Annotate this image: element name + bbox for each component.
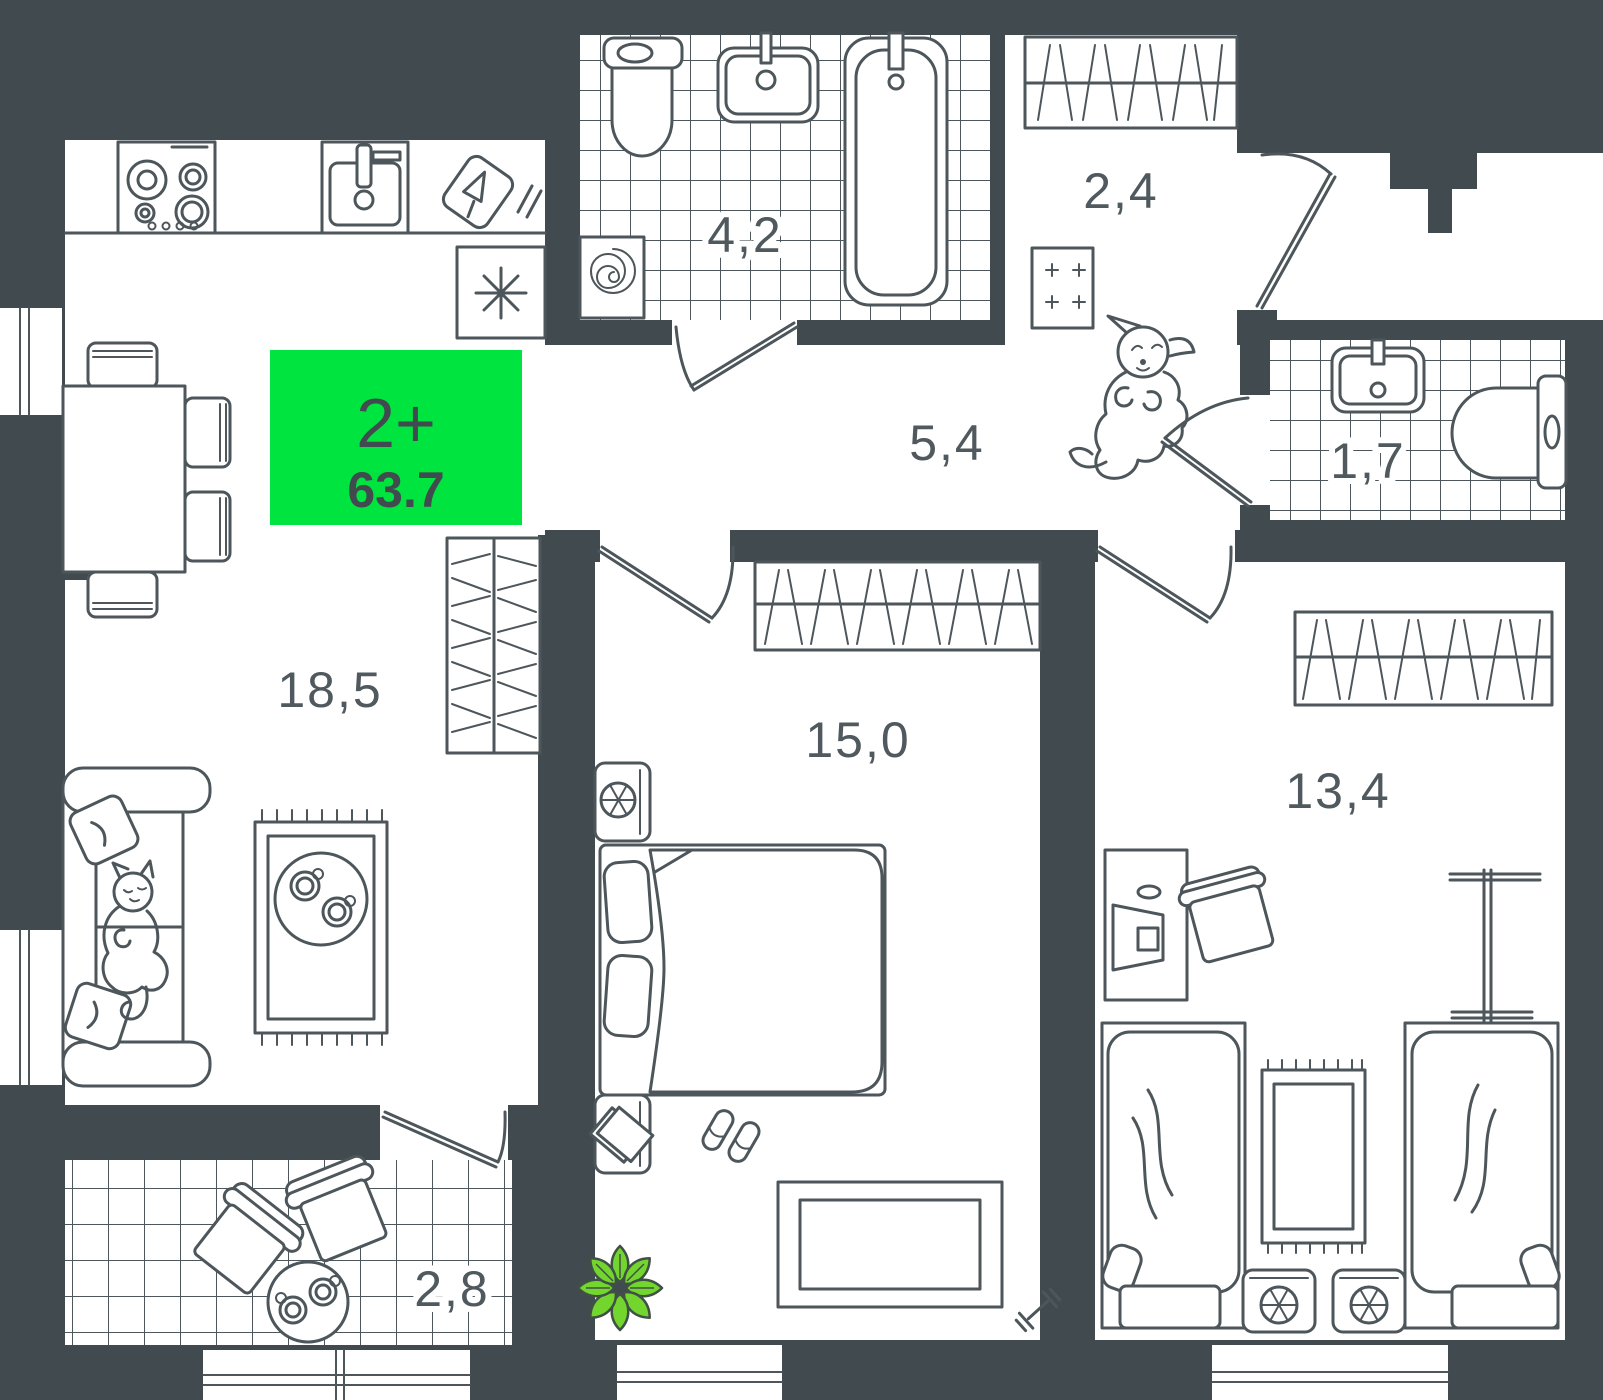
window-living-left-top (0, 308, 62, 415)
pillow (603, 861, 652, 944)
label-toilet-area: 1,7 (1330, 433, 1406, 489)
entrance-door-opening (1237, 153, 1277, 310)
label-hallway-area: 5,4 (909, 415, 985, 471)
nightstand-with-book (590, 1095, 653, 1173)
window-balcony-bottom (203, 1350, 470, 1400)
window-living-left-bottom (0, 930, 62, 1085)
double-bed (600, 845, 885, 1095)
single-bed-right (1405, 1023, 1563, 1328)
desk-with-monitor (1105, 850, 1187, 1000)
living-wardrobe-closet (447, 538, 540, 753)
label-kids-bedroom-area: 13,4 (1285, 763, 1390, 819)
pillow (603, 955, 652, 1038)
label-bedroom-area: 15,0 (805, 712, 910, 768)
shoe-cabinet (1032, 248, 1093, 328)
bathtub-icon (845, 33, 947, 305)
kids-wardrobe-closet (1295, 612, 1552, 705)
badge-area-value: 63.7 (347, 462, 444, 518)
single-bed-left (1099, 1023, 1245, 1328)
landing-pillar-stem (1428, 189, 1452, 233)
label-balcony-area: 2,8 (414, 1261, 490, 1317)
window-bedroom-bottom (617, 1345, 782, 1400)
kids-nightstand-left (1243, 1270, 1315, 1332)
balcony-table (268, 1262, 348, 1342)
kids-nightstand-right (1333, 1270, 1405, 1332)
living-bedroom-wall (538, 535, 595, 1105)
floor-plan: 18,5 4,2 2,4 5,4 1,7 15,0 13,4 2,8 2+ 63… (0, 0, 1603, 1400)
stove-icon (118, 142, 215, 233)
landing-pillar (1390, 153, 1477, 189)
wardrobe-rail-closet (1025, 37, 1237, 128)
kitchen-sink-icon (322, 142, 408, 233)
tv-dresser (778, 1182, 1002, 1307)
balcony-door-opening (380, 1105, 508, 1160)
floor-plan-page: 18,5 4,2 2,4 5,4 1,7 15,0 13,4 2,8 2+ 63… (0, 0, 1603, 1400)
badge-type-label: 2+ (356, 384, 436, 462)
coffee-table (275, 853, 367, 945)
label-kitchen-living-area: 18,5 (277, 662, 382, 718)
label-wardrobe-area: 2,4 (1083, 163, 1159, 219)
washing-machine-icon (580, 237, 644, 318)
window-kids-bedroom-bottom (1212, 1345, 1448, 1400)
fridge-icon (457, 247, 545, 338)
nightstand-with-lamp (595, 763, 650, 841)
label-bathroom-area: 4,2 (707, 207, 783, 263)
toilet-sink-icon (1332, 340, 1424, 412)
snowflake-asterisk-icon (476, 268, 526, 318)
apartment-badge: 2+ 63.7 (270, 350, 522, 525)
bedroom-wardrobe-closet (755, 562, 1040, 650)
potted-plant (578, 1246, 662, 1330)
toilet-door-opening (1240, 395, 1270, 505)
